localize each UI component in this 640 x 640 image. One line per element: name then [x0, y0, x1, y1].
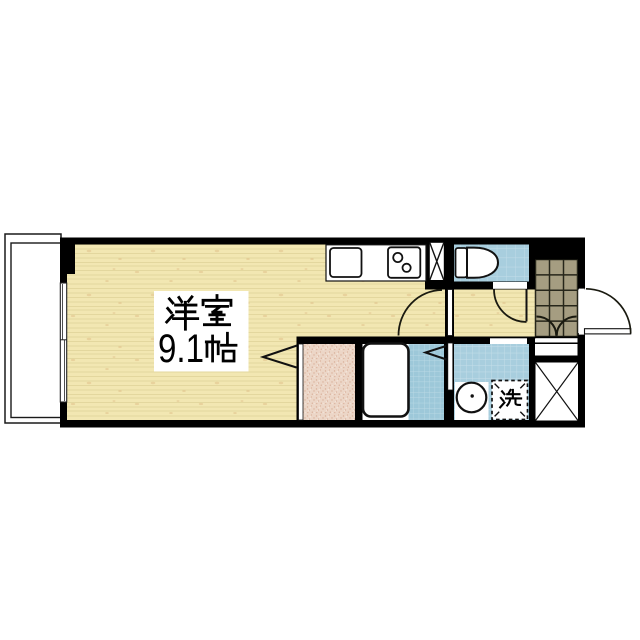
svg-text:9.1: 9.1: [158, 327, 204, 371]
